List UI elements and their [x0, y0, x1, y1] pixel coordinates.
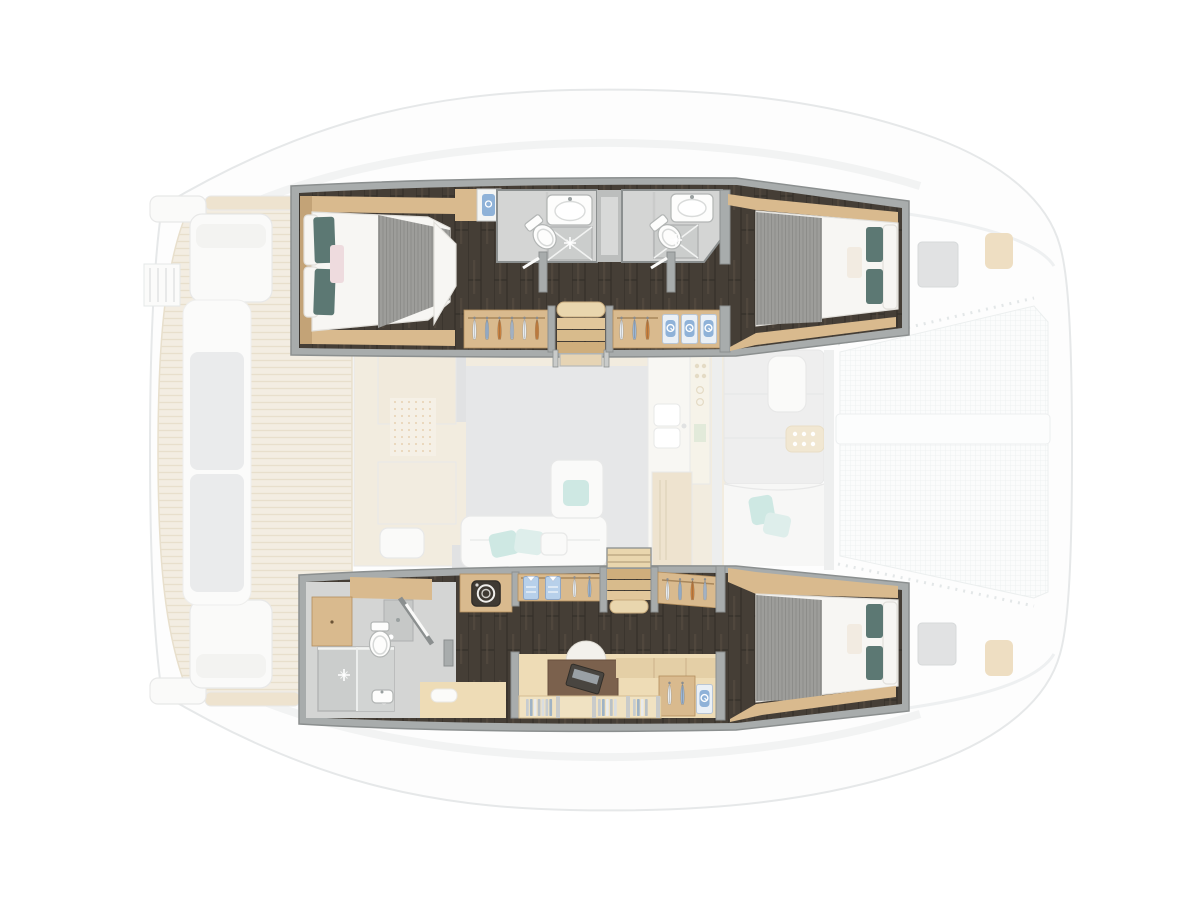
- stair-tread: [607, 569, 651, 579]
- stair-tread: [607, 580, 651, 590]
- book: [637, 699, 640, 716]
- pillow: [380, 528, 424, 558]
- transom-pad: [205, 196, 300, 210]
- bed-trim: [312, 330, 455, 346]
- door-post: [539, 252, 547, 292]
- towel: [482, 194, 495, 216]
- stair-tread: [557, 330, 605, 341]
- stove-panel: [690, 350, 710, 484]
- book: [610, 699, 613, 716]
- console-keypad: [786, 426, 824, 452]
- book: [538, 699, 541, 716]
- landing-mat: [601, 197, 618, 255]
- pillow: [563, 480, 589, 506]
- office-closet: [659, 676, 695, 716]
- sink-unit: [547, 195, 592, 225]
- cockpit-lounge: [183, 300, 251, 605]
- catamaran-layout-plan: [0, 0, 1200, 900]
- vestibule: [420, 682, 506, 718]
- wall-post: [651, 567, 658, 612]
- book: [542, 699, 545, 716]
- pillow: [513, 528, 544, 556]
- pillow-teal: [866, 269, 883, 304]
- door-post: [667, 252, 675, 292]
- bed-runner: [756, 212, 822, 325]
- cabinet-top: [350, 577, 432, 600]
- book: [526, 699, 529, 716]
- plan-canvas: [0, 0, 1200, 900]
- pillow-teal: [866, 227, 883, 262]
- bow-pad: [985, 640, 1013, 676]
- salon: [354, 348, 726, 573]
- vanity-lamp: [431, 689, 457, 702]
- bed-runner: [756, 595, 822, 701]
- deck-hatch: [918, 623, 956, 665]
- book: [534, 699, 537, 716]
- counter: [616, 658, 716, 678]
- sink-basin: [654, 428, 680, 448]
- corridor-cabinet: [455, 189, 501, 221]
- bench-cushion: [196, 224, 266, 248]
- book: [633, 699, 636, 716]
- faucet: [396, 618, 400, 622]
- pillow-teal: [866, 604, 883, 638]
- book: [606, 699, 609, 716]
- washing-machine-icon: [472, 581, 500, 606]
- sink-unit: [671, 194, 713, 222]
- panel-item: [694, 424, 706, 442]
- pillow-cream: [847, 247, 862, 278]
- starboard-staircase: [607, 548, 651, 613]
- cabin-wall: [716, 652, 725, 720]
- salon-forward-wall: [712, 350, 722, 572]
- bow-pad: [985, 233, 1013, 269]
- cockpit-forward-wall: [824, 350, 834, 570]
- stair-tread: [607, 591, 651, 600]
- wall-post: [600, 567, 607, 612]
- book: [641, 699, 644, 716]
- wall-post: [511, 652, 519, 718]
- cabinet-handle: [330, 620, 333, 623]
- stair-landing: [560, 354, 602, 366]
- wall-post: [606, 306, 613, 352]
- trampoline-crossbar: [836, 414, 1050, 444]
- stair-landing: [610, 600, 648, 613]
- pillow: [883, 225, 897, 309]
- stair-tread: [557, 318, 605, 329]
- book: [549, 699, 552, 716]
- galley-cabinet: [652, 472, 692, 572]
- port-hull: [291, 178, 909, 367]
- book: [614, 699, 617, 716]
- bed-trim: [312, 196, 455, 214]
- book: [645, 699, 648, 716]
- pillow-blush: [330, 245, 344, 283]
- stair-tread: [557, 342, 605, 353]
- faucet: [682, 424, 687, 429]
- trampoline-net: [840, 306, 1048, 598]
- chaise-port: [378, 462, 456, 524]
- forward-cockpit: [724, 350, 834, 570]
- port-staircase: [553, 302, 609, 367]
- pillow: [541, 533, 567, 555]
- pillow: [883, 602, 897, 684]
- book: [602, 699, 605, 716]
- cabin-wall: [720, 306, 730, 352]
- faucet: [690, 195, 694, 199]
- transom-pad: [205, 692, 300, 706]
- pillow-cream: [847, 624, 862, 654]
- book: [598, 699, 601, 716]
- bench-cushion: [196, 654, 266, 678]
- swim-ladder: [144, 264, 180, 306]
- sink-basin: [654, 404, 680, 426]
- wall-post: [548, 306, 555, 352]
- door-post: [444, 640, 453, 666]
- deck-hatch: [918, 242, 958, 287]
- book: [530, 699, 533, 716]
- pillow-teal: [866, 646, 883, 680]
- cockpit-table: [768, 356, 806, 412]
- book: [546, 699, 549, 716]
- cabin-wall: [716, 566, 725, 612]
- faucet: [568, 197, 572, 201]
